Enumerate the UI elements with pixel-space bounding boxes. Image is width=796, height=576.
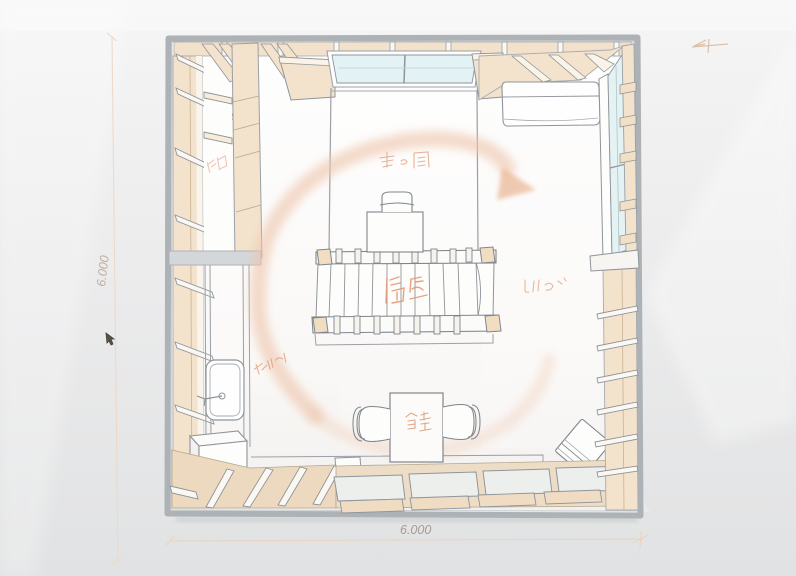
svg-text:6.000: 6.000: [400, 523, 431, 537]
